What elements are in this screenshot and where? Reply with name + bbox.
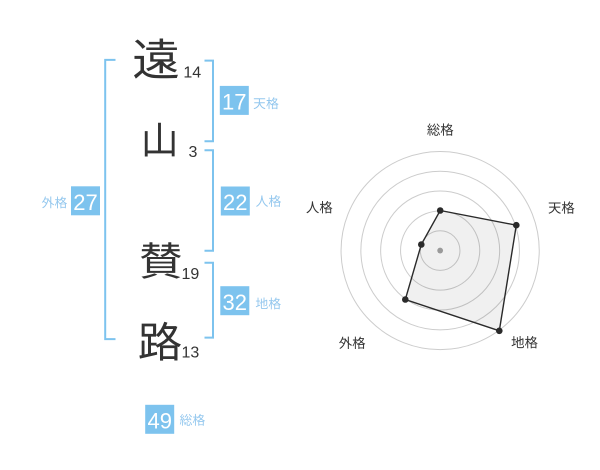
svg-text:17: 17 (222, 90, 246, 115)
svg-text:49: 49 (147, 409, 171, 434)
svg-text:13: 13 (182, 345, 200, 362)
svg-text:27: 27 (73, 190, 97, 215)
svg-text:3: 3 (189, 144, 198, 161)
svg-text:19: 19 (182, 266, 200, 283)
svg-text:22: 22 (223, 190, 247, 215)
svg-text:32: 32 (223, 290, 247, 315)
svg-text:14: 14 (183, 64, 201, 81)
